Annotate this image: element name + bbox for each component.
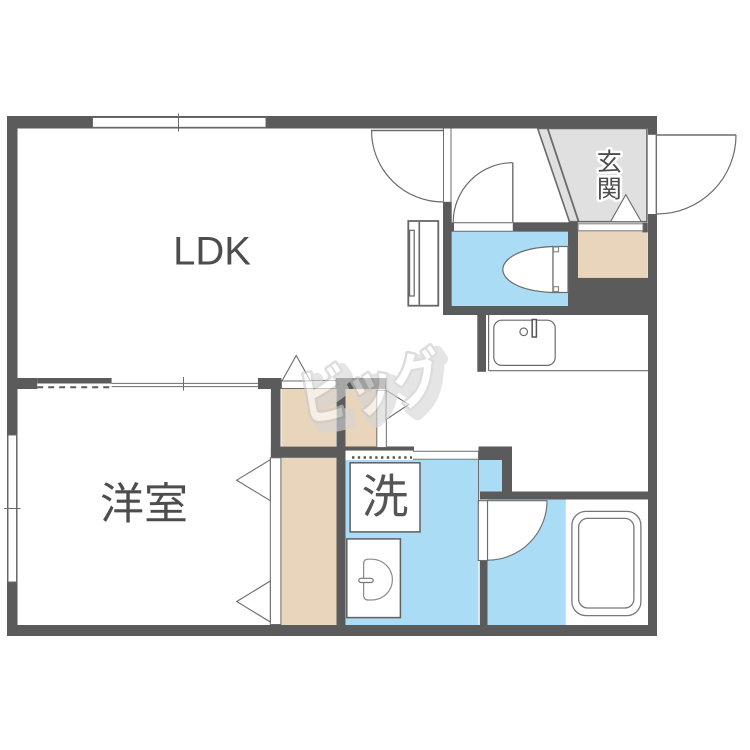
svg-text:LDK: LDK — [173, 230, 251, 274]
